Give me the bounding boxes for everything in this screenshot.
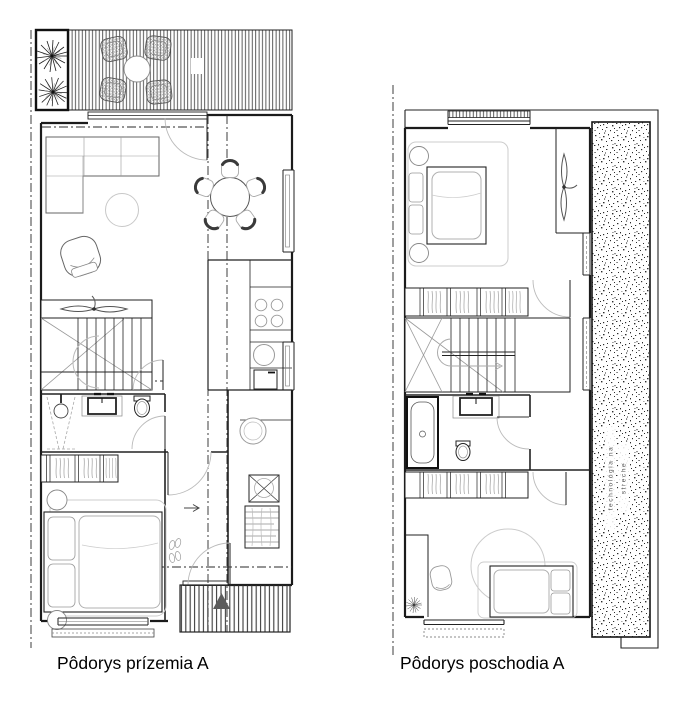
roof-note-text: technológia na [608, 446, 615, 511]
bedroom-window [52, 618, 154, 637]
sliding-door-terrace [88, 112, 207, 119]
window-dining [283, 170, 294, 252]
door-arc [165, 118, 207, 160]
desk-chair [429, 564, 454, 592]
upper-floor-plan: technológia na streche [393, 85, 658, 655]
coffee-table [106, 194, 139, 227]
kitchen-counter [208, 260, 292, 420]
roof-technology-strip: technológia na streche [592, 122, 650, 637]
bathtub [407, 397, 438, 468]
door-arc [533, 280, 570, 317]
shaft-box [249, 475, 279, 502]
bathroom-sink [453, 394, 499, 418]
door-arc [188, 543, 230, 585]
bed [478, 562, 577, 618]
pillow [409, 205, 423, 234]
shoes-icon [168, 538, 181, 563]
nightstand [47, 490, 67, 510]
staircase [405, 318, 570, 392]
terrace-table [124, 56, 150, 82]
staircase [41, 318, 163, 390]
entry-arrow-icon [184, 505, 199, 512]
door-arc [497, 417, 529, 449]
washing-machine [240, 418, 266, 444]
door-arc [168, 452, 211, 495]
kitchen-sink [254, 345, 275, 366]
bottom-slider [424, 620, 504, 637]
floor-plan-sheet: technológia na streche [0, 0, 676, 702]
cooktop [255, 299, 283, 327]
bathroom-sink [82, 394, 122, 416]
dishwasher [254, 370, 277, 389]
shower [47, 394, 75, 449]
nightstand [410, 244, 429, 263]
floor-plan-drawing: technológia na streche [0, 0, 676, 702]
terrace-planter [32, 30, 75, 113]
upper-floor-label: Pôdorys poschodia A [400, 653, 565, 673]
window-kitchen [283, 342, 294, 390]
ground-floor-label: Pôdorys prízemia A [57, 653, 209, 673]
nightstand [48, 611, 67, 630]
terrace-chair [99, 77, 128, 104]
window-bedroom [583, 233, 590, 275]
wardrobe [405, 472, 528, 498]
nightstand [410, 147, 429, 166]
toilet [456, 441, 470, 461]
window-stair [583, 318, 590, 390]
dining-table [211, 178, 250, 217]
armchair [57, 233, 104, 280]
wardrobe [405, 288, 528, 316]
terrace-chair [145, 79, 172, 104]
ceiling-fan-icon [561, 154, 577, 220]
fan-ceiling-strip [41, 300, 152, 318]
ground-floor-plan [31, 30, 294, 648]
door-arc [533, 472, 566, 505]
top-window [448, 111, 530, 125]
desk [405, 535, 428, 617]
wardrobe [41, 455, 118, 482]
pillow [409, 173, 423, 202]
door-arc [132, 416, 165, 449]
terrace-chair [144, 35, 172, 61]
shelf-closet [245, 506, 279, 548]
sofa [46, 137, 159, 213]
toilet [134, 396, 150, 417]
roof-note-text: streche [621, 462, 628, 495]
bed [44, 500, 166, 616]
entrance-porch [180, 585, 290, 632]
dining-chair [222, 160, 239, 177]
plant-icon [406, 597, 422, 613]
